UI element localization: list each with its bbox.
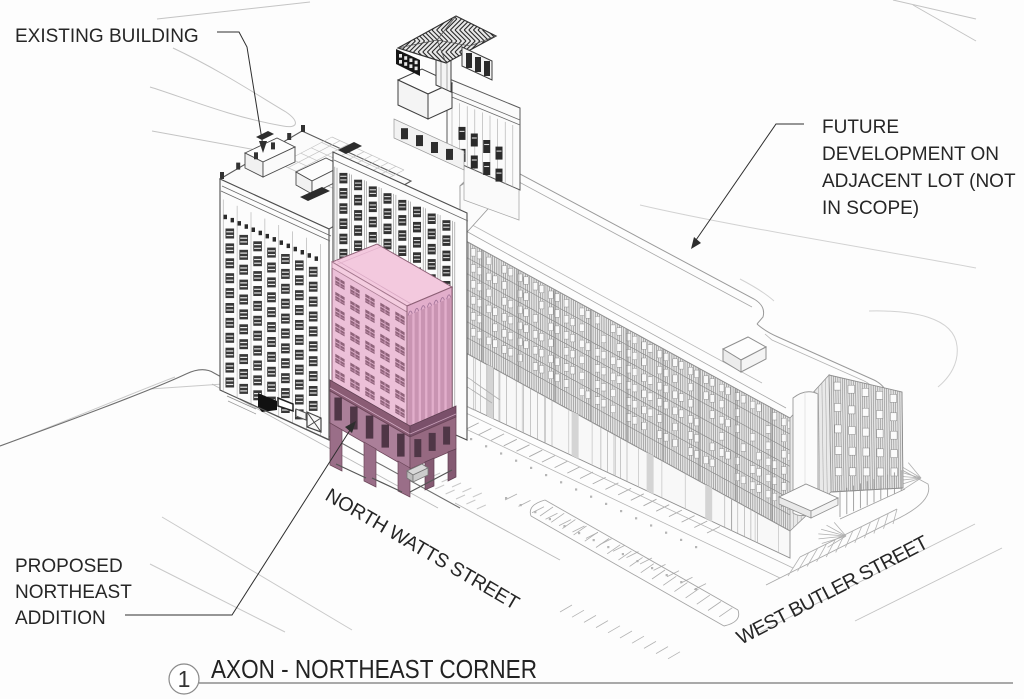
svg-text:1: 1	[178, 666, 191, 692]
svg-text:AXON - NORTHEAST CORNER: AXON - NORTHEAST CORNER	[211, 654, 537, 684]
svg-text:EXISTING BUILDING: EXISTING BUILDING	[15, 26, 199, 47]
svg-text:IN SCOPE): IN SCOPE)	[822, 198, 919, 219]
svg-text:ADJACENT LOT (NOT: ADJACENT LOT (NOT	[822, 171, 1016, 192]
svg-text:DEVELOPMENT ON: DEVELOPMENT ON	[822, 144, 999, 165]
svg-text:FUTURE: FUTURE	[822, 117, 899, 138]
svg-text:ADDITION: ADDITION	[15, 608, 106, 629]
svg-text:NORTHEAST: NORTHEAST	[15, 582, 132, 603]
svg-text:PROPOSED: PROPOSED	[15, 556, 123, 577]
